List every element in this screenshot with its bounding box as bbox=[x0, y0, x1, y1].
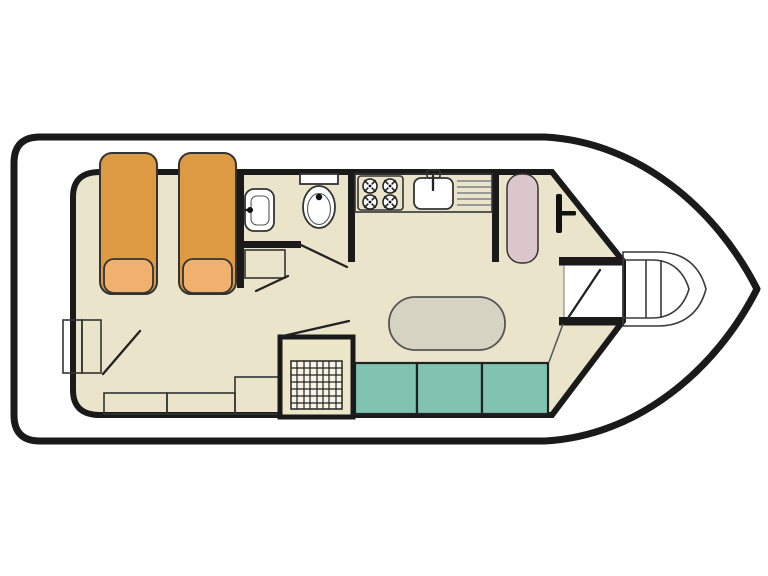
toilet-flush bbox=[316, 194, 322, 200]
bench-cushion bbox=[355, 363, 417, 414]
shower bbox=[280, 321, 353, 417]
toilet bbox=[300, 174, 338, 228]
berth-left-pillow bbox=[104, 259, 153, 293]
boat-floorplan bbox=[0, 0, 768, 576]
steering-arm bbox=[560, 211, 576, 216]
bathroom-bottom-wall bbox=[244, 241, 301, 248]
bathroom-left-wall bbox=[237, 172, 244, 288]
bench-cushion bbox=[482, 363, 548, 414]
vestibule-top-wall bbox=[559, 257, 624, 266]
bench-cushion bbox=[417, 363, 482, 414]
galley-left-wall bbox=[348, 170, 355, 262]
boat-floorplan-page bbox=[0, 0, 768, 576]
bench-seat bbox=[355, 363, 548, 414]
washbasin bbox=[242, 189, 274, 231]
galley-right-wall bbox=[492, 170, 499, 262]
berth-right-pillow bbox=[183, 259, 232, 293]
dinette-table bbox=[389, 297, 505, 350]
helm-seat bbox=[507, 174, 538, 263]
basin-tap-head bbox=[247, 207, 253, 213]
toilet-cistern bbox=[300, 174, 338, 184]
